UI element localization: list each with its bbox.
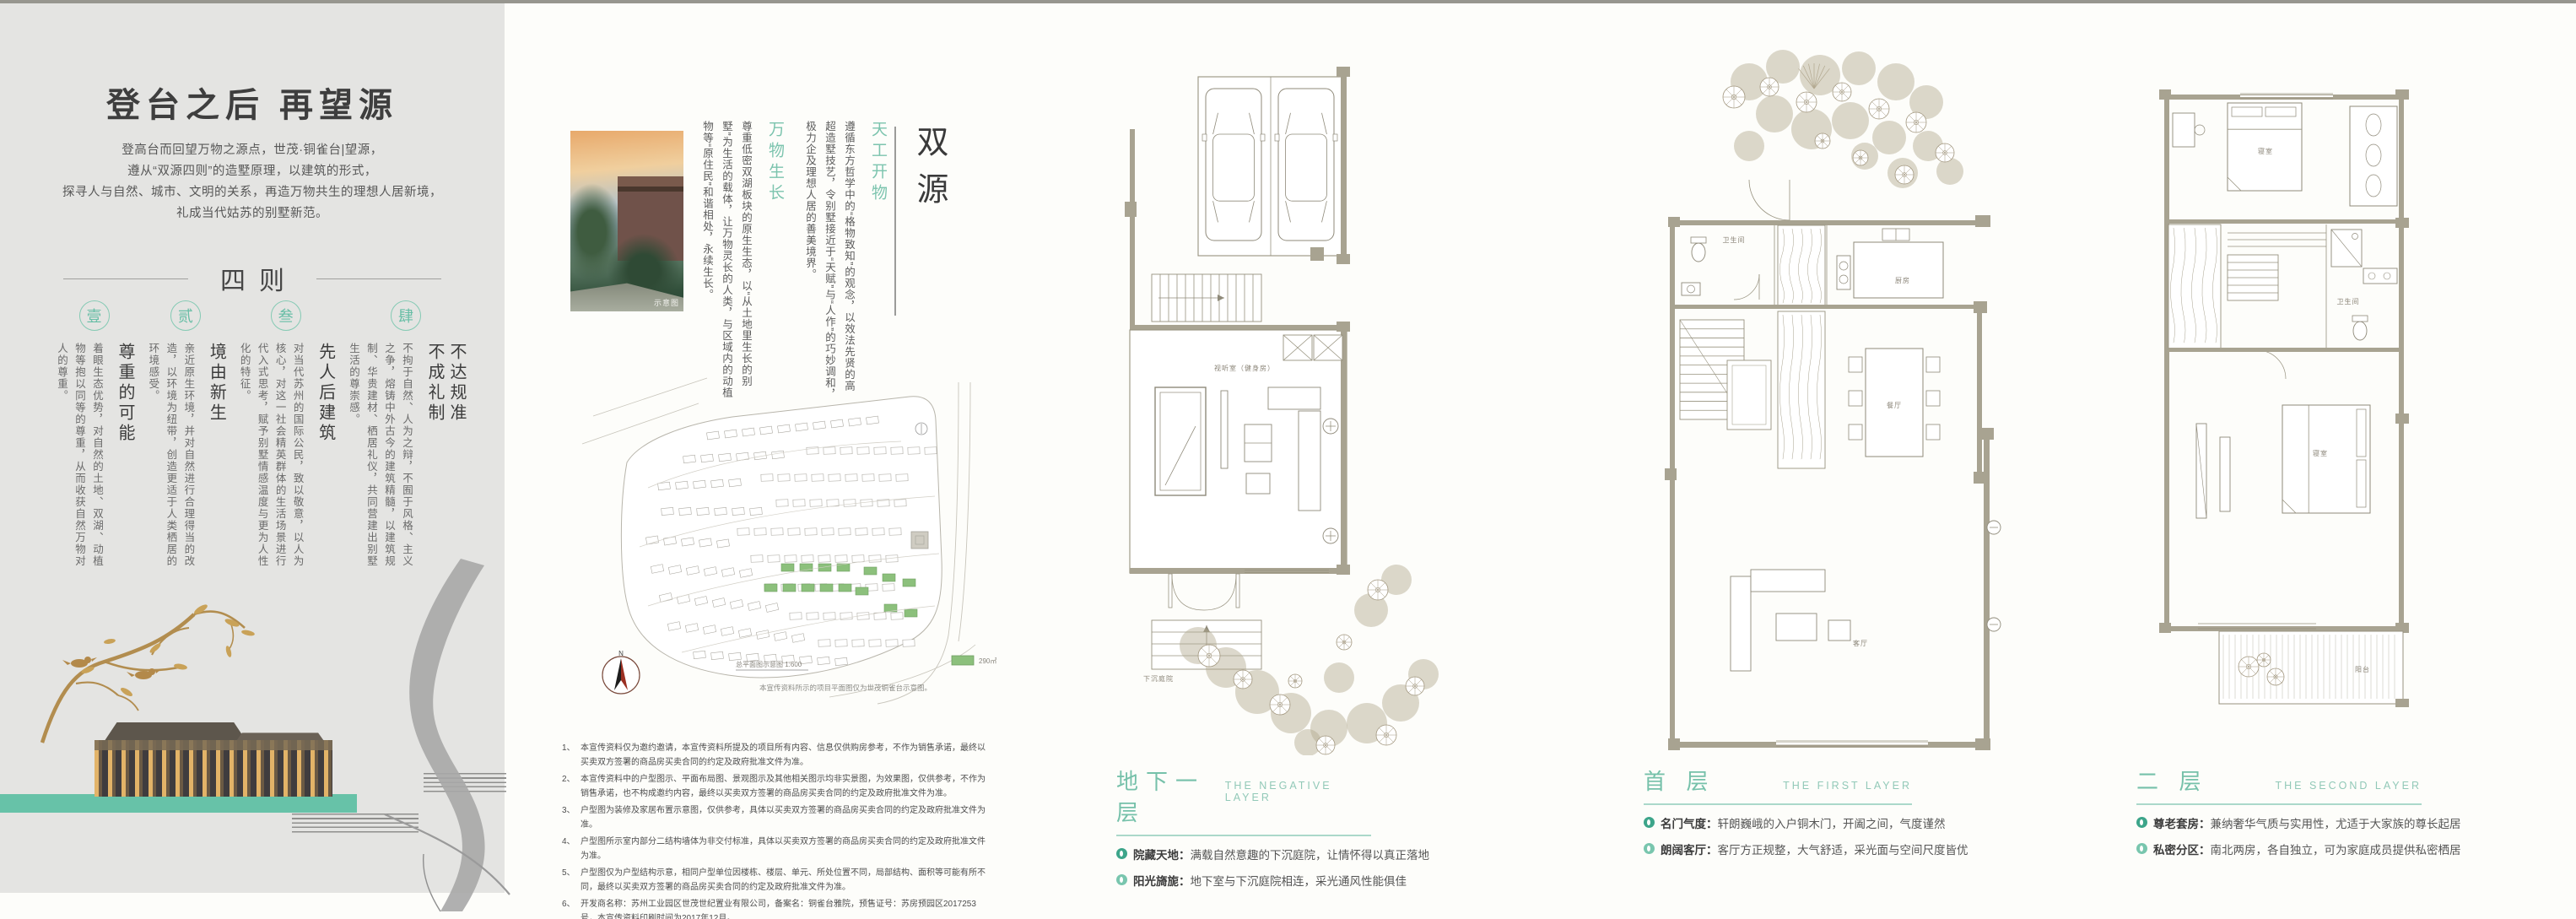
- feature-label: 尊老套房：: [2153, 814, 2211, 831]
- principle-title: 境由新生: [205, 343, 227, 576]
- concept-title: 万物生长: [764, 121, 786, 401]
- headline-rule: [894, 127, 896, 316]
- feature-label: 名门气度：: [1661, 814, 1718, 831]
- feature-text: 兼纳奢华气质与实用性，尤适于大家族的尊长起居: [2211, 814, 2461, 831]
- room-label: 卫生间: [2337, 297, 2360, 305]
- room-label: 厨房: [1895, 276, 1910, 284]
- four-principles: 壹 尊重的可能 着眼生态优势，对自然的土地、双湖、动植物等抱以同等的尊重，从而收…: [52, 300, 467, 579]
- principle-1: 壹 尊重的可能 着眼生态优势，对自然的土地、双湖、动植物等抱以同等的尊重，从而收…: [52, 300, 136, 579]
- feature-text: 客厅方正规整，大气舒适，采光面与空间尺度皆优: [1718, 841, 1968, 857]
- page-title: 登台之后 再望源: [0, 78, 505, 127]
- disclaimer-text: 本宣传资料中的户型图示、平面布局图、景观图示及其他相关图示均非实景图，为效果图，…: [581, 772, 988, 801]
- disclaimer-text: 本宣传资料仅为邀约邀请，本宣传资料所提及的项目所有内容、信息仅供购房参考，不作为…: [581, 741, 988, 770]
- concept-principles: 天工开物 遵循东方哲学中的“格物致知”的观念，以效法先贤的高超造墅技艺，令别墅接…: [667, 121, 889, 401]
- disclaimer-text: 户型图为装修及家居布置示意图，仅供参考，具体以买卖双方签署的商品房买卖合同的约定…: [581, 803, 988, 832]
- principle-2: 贰 境由新生 亲近原生环境，并对自然进行合理得当的改造，以环境为纽带，创造更适于…: [143, 300, 227, 579]
- concept-headline: 双源: [906, 125, 953, 219]
- intro-paragraph: 登高台而回望万物之源点，世茂·铜雀台|望源， 遵从“双源四则”的造墅原理，以建筑…: [34, 140, 471, 224]
- principle-body: 不拘于自然、人为之辩，不囿于风格、主义之争，熔铸中外古今的建筑精髓，以建筑规制、…: [344, 343, 415, 576]
- section-heading: 四则: [0, 260, 505, 297]
- room-label: 下沉庭院: [1143, 674, 1174, 683]
- basement-caption: 地下一层 THE NEGATIVE LAYER 院藏天地：满载自然意趣的下沉庭院…: [1116, 765, 1371, 889]
- feature-label: 院藏天地：: [1133, 846, 1191, 862]
- feature-label: 阳光旖旎：: [1133, 872, 1191, 889]
- siteplan-note: 本宣传资料所示的项目平面图仅为世茂铜雀台示意图。: [759, 684, 932, 692]
- floor-name-en: THE FIRST LAYER: [1783, 780, 1912, 792]
- principle-body: 对当代苏州的国际公民，致以敬意，以人为核心，对这一社会精英群体的生活场景进行代入…: [235, 343, 306, 576]
- leaf-bullet-icon: [1116, 848, 1127, 859]
- principle-4: 肆 不达规准 不成礼制 不拘于自然、人为之辩，不囿于风格、主义之争，熔铸中外古今…: [344, 300, 467, 579]
- leaf-bullet-icon: [1644, 817, 1655, 828]
- feature-label: 私密分区：: [2153, 841, 2211, 857]
- first-floor-floorplan: 卫生间厨房餐厅客厅: [1650, 30, 2046, 755]
- floor-name: 地下一层: [1116, 765, 1225, 827]
- heading-rule-right: [316, 278, 441, 279]
- concept-body: 尊重低密双湖板块的原生生态，以“从土地里生长的别墅”为生活的载体，让万物灵长的人…: [697, 121, 755, 401]
- disclaimer-text: 户型图所示室内部分二结构墙体为非交付标准，具体以买卖双方签署的商品房买卖合同的约…: [581, 835, 988, 863]
- basement-floorplan: 视听室（健身房）下沉庭院: [1118, 30, 1586, 755]
- svg-text:290㎡: 290㎡: [979, 657, 996, 665]
- disclaimer-number: 6、: [562, 897, 581, 919]
- second-floor-caption: 二 层 THE SECOND LAYER 尊老套房：兼纳奢华气质与实用性，尤适于…: [2136, 765, 2422, 857]
- disclaimer-number: 3、: [562, 803, 581, 832]
- first-floor-caption: 首 层 THE FIRST LAYER 名门气度：轩朗巍峨的入户铜木门，开阖之间…: [1644, 765, 1912, 857]
- circled-number-icon: 叁: [271, 300, 301, 331]
- principle-3: 叁 先人后建筑 对当代苏州的国际公民，致以敬意，以人为核心，对这一社会精英群体的…: [235, 300, 337, 579]
- svg-text:N: N: [618, 650, 624, 657]
- intro-line: 遵从“双源四则”的造墅原理，以建筑的形式，: [34, 161, 471, 182]
- circled-number-icon: 肆: [391, 300, 421, 331]
- circled-number-icon: 壹: [79, 300, 110, 331]
- disclaimer-text: 开发商名称：苏州工业园区世茂世纪置业有限公司，备案名：铜雀台雅院，预售证号：苏房…: [581, 897, 988, 919]
- principle-title: 不达规准 不成礼制: [424, 343, 467, 576]
- svg-text:总平面图示意图 1:600: 总平面图示意图 1:600: [736, 660, 802, 668]
- room-label: 视听室（健身房）: [1214, 364, 1275, 372]
- crane-silhouette: [334, 557, 518, 916]
- siteplan-legend: 290㎡: [952, 656, 996, 665]
- floor-name: 二 层: [2136, 765, 2209, 796]
- disclaimer-text: 户型图仅为户型结构示意，相同户型单位因楼栋、楼层、单元、所处位置不同，局部结构、…: [581, 866, 988, 895]
- principle-body: 着眼生态优势，对自然的土地、双湖、动植物等抱以同等的尊重，从而收获自然万物对人的…: [52, 343, 105, 576]
- principle-title: 尊重的可能: [114, 343, 136, 576]
- room-label: 阳台: [2355, 665, 2370, 673]
- concept-body: 遵循东方哲学中的“格物致知”的观念，以效法先贤的高超造墅技艺，令别墅接近于“天赋…: [800, 121, 858, 401]
- leaf-bullet-icon: [1116, 874, 1127, 885]
- feature-label: 朗阔客厅：: [1661, 841, 1718, 857]
- heading-rule-left: [63, 278, 188, 279]
- floor-name: 首 层: [1644, 765, 1716, 796]
- teal-accent-band: [0, 794, 357, 813]
- floor-name-en: THE NEGATIVE LAYER: [1225, 780, 1371, 803]
- brochure-spread: 登台之后 再望源 登高台而回望万物之源点，世茂·铜雀台|望源， 遵从“双源四则”…: [0, 0, 2576, 919]
- concept-block-2: 万物生长 尊重低密双湖板块的原生生态，以“从土地里生长的别墅”为生活的载体，让万…: [697, 121, 786, 401]
- concept-block-1: 天工开物 遵循东方哲学中的“格物致知”的观念，以效法先贤的高超造墅技艺，令别墅接…: [800, 121, 889, 401]
- feature-text: 地下室与下沉庭院相连，采光通风性能俱佳: [1191, 872, 1407, 889]
- site-masterplan: N 290㎡ 总平面图示意图 1:600 本宣传资料所示的项目平面图仅为世茂铜雀…: [581, 361, 1043, 720]
- feature-text: 满载自然意趣的下沉庭院，让情怀得以真正落地: [1191, 846, 1430, 862]
- disclaimer-number: 5、: [562, 866, 581, 895]
- room-label: 寝室: [2258, 147, 2273, 155]
- second-floor-floorplan: 寝室卫生间寝室阳台: [2147, 76, 2519, 743]
- disclaimer-number: 1、: [562, 741, 581, 770]
- principle-body: 亲近原生环境，并对自然进行合理得当的改造，以环境为纽带，创造更适于人类栖居的环境…: [143, 343, 197, 576]
- intro-line: 礼成当代姑苏的别墅新范。: [34, 203, 471, 224]
- disclaimer-number: 2、: [562, 772, 581, 801]
- floor-name-en: THE SECOND LAYER: [2276, 780, 2422, 792]
- leaf-bullet-icon: [2136, 817, 2147, 828]
- room-label: 卫生间: [1723, 235, 1746, 244]
- leaf-bullet-icon: [2136, 843, 2147, 854]
- intro-line: 登高台而回望万物之源点，世茂·铜雀台|望源，: [34, 140, 471, 161]
- golden-branch-illustration: [24, 589, 287, 745]
- feature-text: 南北两房，各自独立，可为家庭成员提供私密栖居: [2211, 841, 2461, 857]
- section-title: 四则: [207, 260, 298, 297]
- compass-icon: N: [602, 650, 640, 694]
- leaf-bullet-icon: [1644, 843, 1655, 854]
- disclaimer-list: 1、本宣传资料仅为邀约邀请，本宣传资料所提及的项目所有内容、信息仅供购房参考，不…: [562, 741, 988, 919]
- principle-title: 先人后建筑: [315, 343, 337, 576]
- room-label: 客厅: [1853, 639, 1868, 647]
- room-label: 寝室: [2313, 449, 2328, 457]
- intro-line: 探寻人与自然、城市、文明的关系，再造万物共生的理想人居新境，: [34, 182, 471, 203]
- concept-title: 天工开物: [867, 121, 889, 401]
- feature-text: 轩朗巍峨的入户铜木门，开阖之间，气度谨然: [1718, 814, 1946, 831]
- circled-number-icon: 贰: [170, 300, 201, 331]
- disclaimer-number: 4、: [562, 835, 581, 863]
- room-label: 餐厅: [1887, 402, 1902, 409]
